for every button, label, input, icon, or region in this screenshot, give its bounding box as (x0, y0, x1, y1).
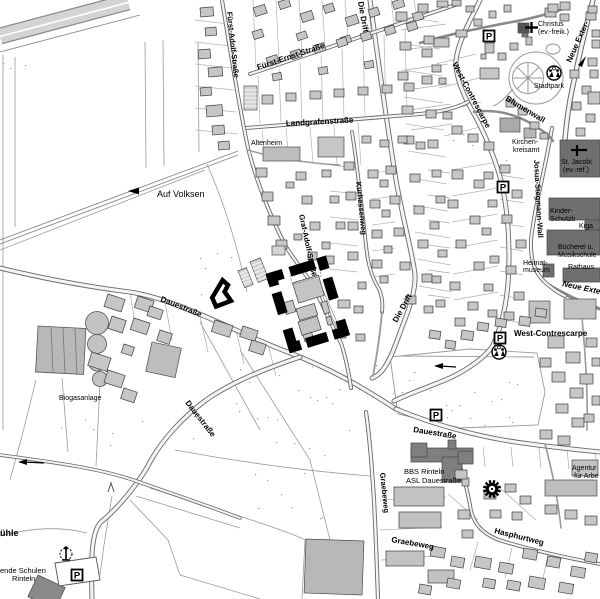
svg-text:(ev.-freik.): (ev.-freik.) (538, 29, 569, 36)
svg-text:Auf Volksen: Auf Volksen (157, 189, 205, 199)
svg-text:St. Jacobi: St. Jacobi (561, 159, 592, 166)
svg-text:museum: museum (523, 267, 550, 274)
svg-text:West-Contrescarpe: West-Contrescarpe (514, 329, 588, 338)
svg-text:(ev.-ref.): (ev.-ref.) (563, 167, 589, 174)
svg-text:Agentur: Agentur (572, 465, 597, 472)
svg-text:Schutzb: Schutzb (550, 216, 575, 223)
svg-text:Heimat-: Heimat- (523, 260, 548, 267)
svg-text:Bücherei u.: Bücherei u. (558, 244, 593, 251)
svg-text:Kiga: Kiga (579, 223, 593, 230)
svg-text:BBS Rinteln: BBS Rinteln (404, 467, 444, 476)
svg-text:P: P (497, 333, 504, 344)
svg-text:für Arbe: für Arbe (574, 473, 599, 480)
svg-text:P: P (486, 31, 493, 42)
svg-text:Altenheim: Altenheim (251, 140, 282, 147)
svg-text:Kirchen-: Kirchen- (512, 139, 539, 146)
svg-text:Musikschule: Musikschule (558, 252, 597, 259)
svg-text:Rathaus: Rathaus (568, 264, 595, 271)
svg-text:Kinder-: Kinder- (550, 208, 573, 215)
svg-text:Rinteln: Rinteln (12, 574, 35, 583)
svg-text:P: P (74, 570, 81, 581)
svg-text:Biogasanlage: Biogasanlage (59, 395, 102, 402)
svg-text:Stadtpark: Stadtpark (534, 83, 564, 90)
svg-text:ühle: ühle (0, 528, 19, 538)
svg-text:ASL Dauestraße: ASL Dauestraße (406, 476, 461, 485)
svg-text:Christus: Christus (538, 21, 564, 28)
svg-text:P: P (433, 410, 440, 421)
svg-text:kreisamt: kreisamt (513, 147, 540, 154)
svg-text:P: P (500, 182, 507, 193)
